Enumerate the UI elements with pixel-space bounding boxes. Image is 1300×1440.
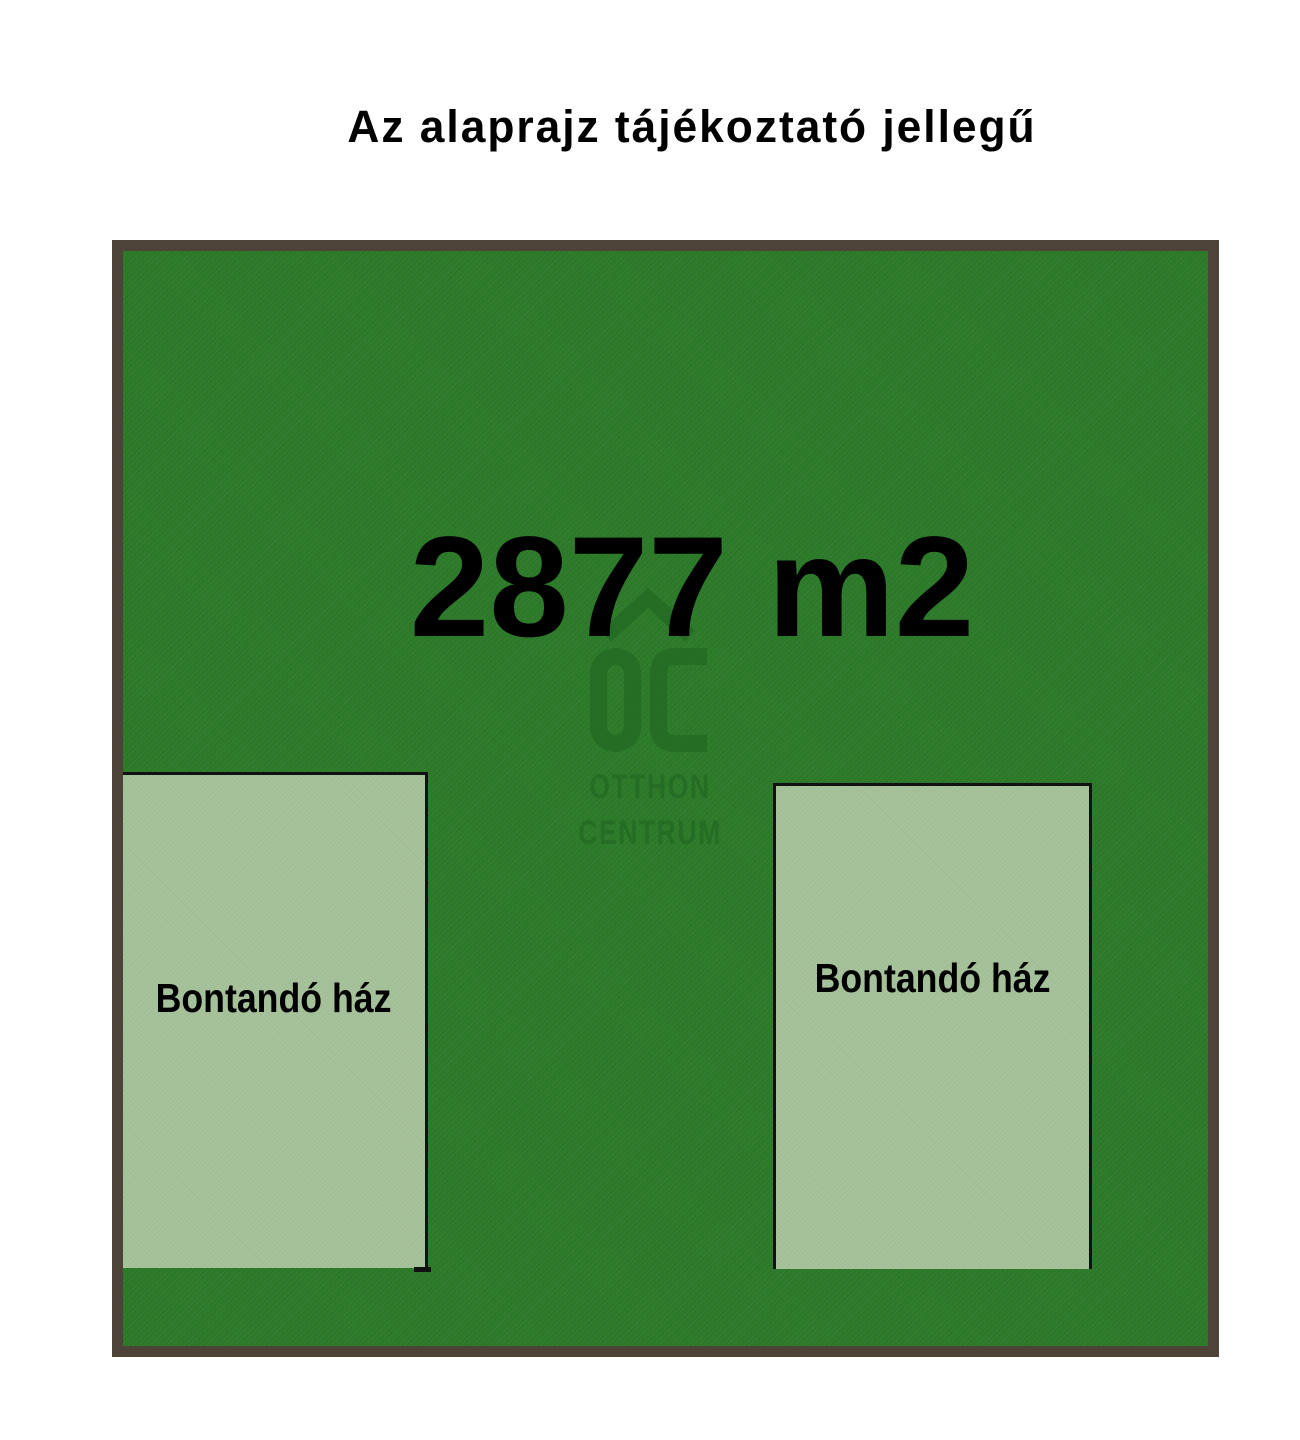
house-label: Bontandó ház bbox=[815, 958, 1051, 999]
house-left: Bontandó ház bbox=[123, 772, 428, 1268]
page-title: Az alaprajz tájékoztató jellegű bbox=[347, 104, 1037, 149]
house-left-corner-notch bbox=[414, 1267, 431, 1272]
house-label: Bontandó ház bbox=[156, 978, 392, 1019]
house-right: Bontandó ház bbox=[773, 783, 1092, 1269]
watermark-wordmark-line2: CENTRUM bbox=[572, 816, 728, 850]
watermark-wordmark-line1: OTTHON bbox=[572, 770, 728, 804]
plot-map: OTTHON CENTRUM 2877 m2 Bontandó ház Bont… bbox=[112, 240, 1219, 1357]
plot-area: OTTHON CENTRUM 2877 m2 Bontandó ház Bont… bbox=[123, 251, 1208, 1346]
area-label: 2877 m2 bbox=[292, 516, 1092, 659]
